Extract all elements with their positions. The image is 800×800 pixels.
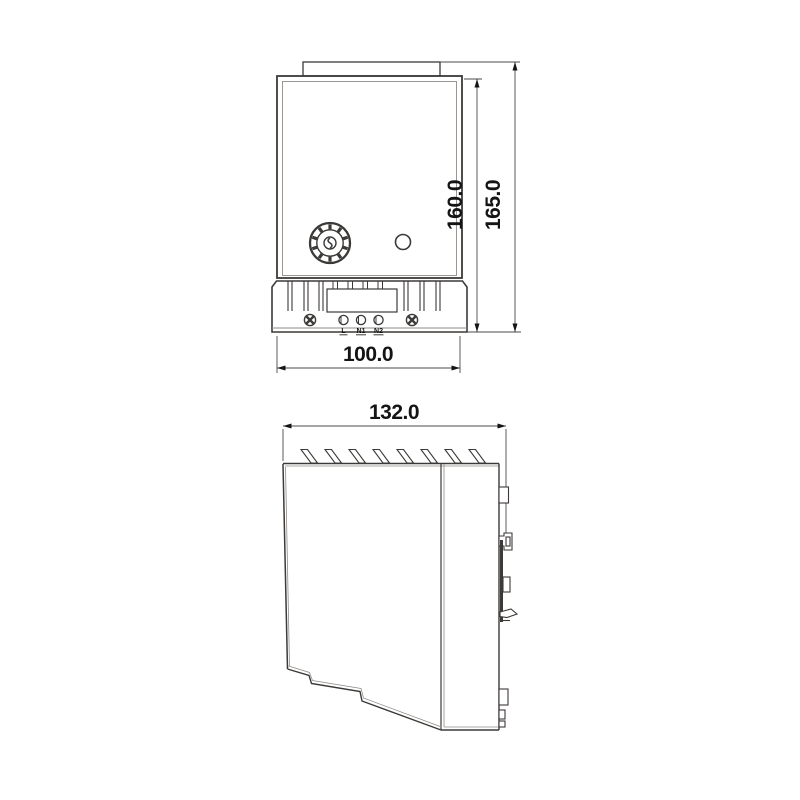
technical-drawing: L N1 N2 160.0 165.0 (0, 0, 800, 800)
dim-height-inner-label: 160.0 (444, 180, 467, 230)
dial-screw-slot (328, 238, 332, 248)
cable-clamp-slots (288, 281, 440, 311)
side-body-outline (283, 464, 499, 731)
terminal-section: L N1 N2 (272, 281, 467, 335)
temperature-dial (310, 223, 350, 263)
terminal-label-l: L (341, 328, 346, 335)
clip-mid-tab (503, 577, 510, 592)
enclosure-inner-line (283, 82, 457, 276)
screw-left-icon (304, 314, 315, 325)
din-rail-clip (499, 487, 517, 727)
side-dimension-depth (283, 424, 506, 544)
terminal-label-n2: N2 (374, 328, 383, 335)
comb-teeth (333, 281, 383, 289)
terminal-block: L N1 N2 (339, 315, 384, 335)
dim-width-label: 100.0 (343, 343, 393, 366)
dim-height-outer-label: 165.0 (482, 180, 505, 230)
terminal-n2 (374, 315, 383, 324)
terminal-window (327, 289, 397, 312)
drawing-canvas: L N1 N2 160.0 165.0 (0, 0, 800, 800)
rear-tab-small-2 (499, 721, 505, 727)
side-view: 132.0 (283, 401, 517, 730)
vent-fins (301, 450, 486, 464)
front-view: L N1 N2 160.0 165.0 (272, 62, 521, 373)
rear-tab-small (499, 710, 505, 719)
terminal-l (339, 315, 348, 324)
indicator-light (396, 235, 411, 250)
rear-tab-lower (499, 689, 508, 705)
rear-tab-top (499, 487, 509, 503)
dim-depth-label: 132.0 (369, 401, 419, 424)
enclosure-outline (277, 76, 462, 278)
terminal-label-n1: N1 (357, 328, 366, 335)
terminal-n1 (356, 315, 365, 324)
top-tab (303, 62, 440, 76)
screw-right-icon (406, 314, 417, 325)
